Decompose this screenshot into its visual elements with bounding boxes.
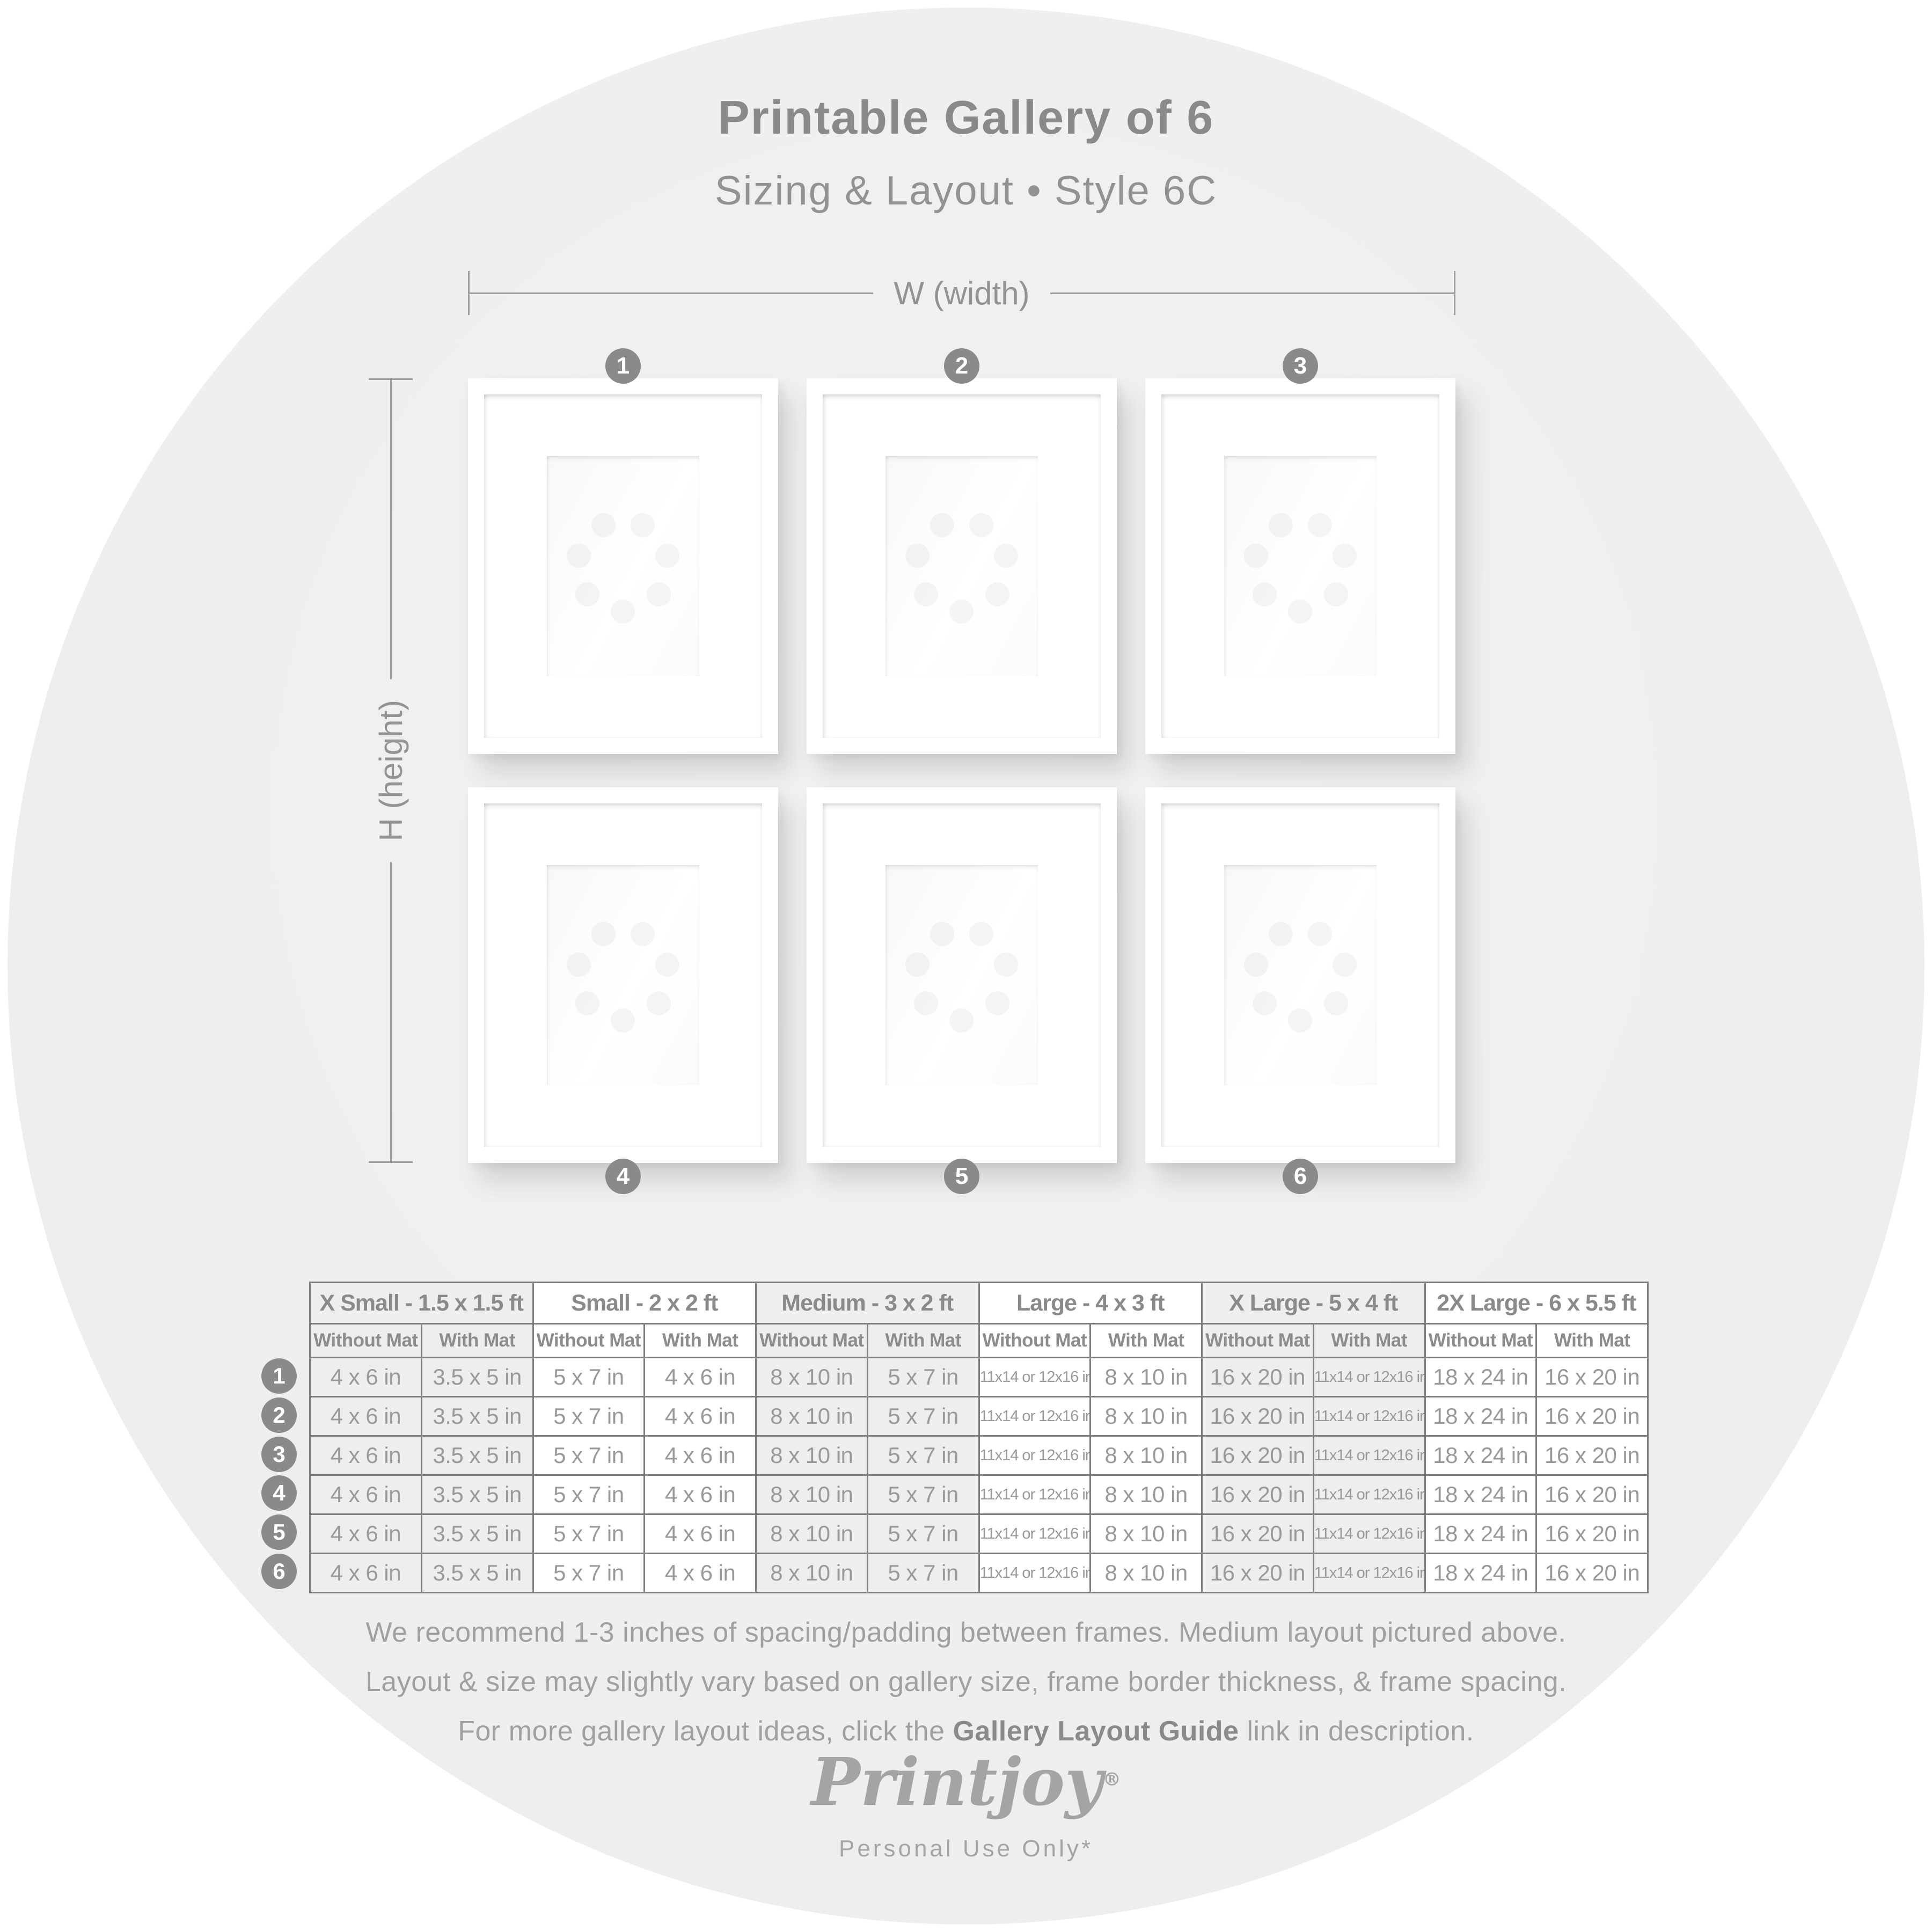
subheader-cell: With Mat bbox=[421, 1324, 533, 1358]
size-cell: 16 x 20 in bbox=[1202, 1436, 1314, 1475]
size-cell: 11x14 or 12x16 in bbox=[1313, 1514, 1425, 1554]
size-cell: 11x14 or 12x16 in bbox=[1313, 1358, 1425, 1397]
placeholder-dot bbox=[1288, 599, 1312, 624]
frame-number-badge: 5 bbox=[944, 1159, 979, 1194]
subheader-cell: Without Mat bbox=[756, 1324, 868, 1358]
size-cell: 4 x 6 in bbox=[310, 1358, 422, 1397]
placeholder-dot bbox=[949, 599, 974, 624]
placeholder-dot bbox=[647, 582, 671, 606]
placeholder-dot bbox=[905, 953, 930, 977]
size-cell: 18 x 24 in bbox=[1425, 1514, 1536, 1554]
placeholder-dot bbox=[1253, 991, 1277, 1015]
size-cell: 11x14 or 12x16 in bbox=[1313, 1397, 1425, 1436]
size-cell: 5 x 7 in bbox=[867, 1358, 979, 1397]
picture-frame bbox=[468, 787, 778, 1163]
placeholder-dot bbox=[1333, 544, 1357, 568]
placeholder-dot bbox=[1288, 1008, 1312, 1033]
frame-mat bbox=[1161, 803, 1439, 1147]
size-cell: 3.5 x 5 in bbox=[421, 1514, 533, 1554]
size-cell: 4 x 6 in bbox=[310, 1436, 422, 1475]
row-number-badge: 2 bbox=[261, 1397, 297, 1433]
footer-line-3-prefix: For more gallery layout ideas, click the bbox=[458, 1716, 953, 1747]
size-cell: 8 x 10 in bbox=[756, 1358, 868, 1397]
size-cell: 4 x 6 in bbox=[645, 1475, 756, 1514]
placeholder-dot bbox=[930, 513, 954, 537]
brand-name: Printjoy bbox=[811, 1743, 1103, 1820]
subheader-cell: Without Mat bbox=[1202, 1324, 1314, 1358]
width-dim-tick-right bbox=[1454, 271, 1455, 315]
height-dim-label: H (height) bbox=[372, 679, 409, 861]
size-cell: 5 x 7 in bbox=[867, 1554, 979, 1593]
size-cell: 8 x 10 in bbox=[1091, 1514, 1202, 1554]
size-cell: 16 x 20 in bbox=[1536, 1358, 1648, 1397]
size-cell: 3.5 x 5 in bbox=[421, 1397, 533, 1436]
frame-number-badge: 3 bbox=[1283, 348, 1318, 384]
size-cell: 16 x 20 in bbox=[1202, 1475, 1314, 1514]
placeholder-dot bbox=[631, 513, 655, 537]
frame-number-badge: 1 bbox=[605, 348, 641, 384]
footer-line-3-suffix: link in description. bbox=[1239, 1716, 1474, 1747]
placeholder-dot bbox=[1333, 953, 1357, 977]
frame-number-badge: 6 bbox=[1283, 1159, 1318, 1194]
subheader-cell: Without Mat bbox=[533, 1324, 645, 1358]
picture-frame bbox=[807, 378, 1117, 754]
size-cell: 4 x 6 in bbox=[645, 1554, 756, 1593]
width-dim-label: W (width) bbox=[873, 275, 1050, 312]
footer-line-1: We recommend 1-3 inches of spacing/paddi… bbox=[0, 1608, 1932, 1657]
placeholder-dot bbox=[567, 544, 591, 568]
placeholder-dot bbox=[575, 582, 599, 606]
table-row: 4 x 6 in3.5 x 5 in5 x 7 in4 x 6 in8 x 10… bbox=[310, 1436, 1648, 1475]
placeholder-dot bbox=[969, 513, 993, 537]
placeholder-dot bbox=[1244, 544, 1268, 568]
frame-mat bbox=[823, 394, 1101, 738]
placeholder-dot bbox=[905, 544, 930, 568]
placeholder-dot bbox=[1253, 582, 1277, 606]
size-cell: 5 x 7 in bbox=[867, 1475, 979, 1514]
brand-logo: Printjoy® bbox=[0, 1743, 1932, 1820]
page-title: Printable Gallery of 6 bbox=[0, 90, 1932, 145]
placeholder-dot bbox=[994, 953, 1018, 977]
placeholder-dot bbox=[1308, 513, 1332, 537]
placeholder-dot bbox=[655, 544, 679, 568]
row-number-badge: 1 bbox=[261, 1358, 297, 1394]
size-cell: 18 x 24 in bbox=[1425, 1554, 1536, 1593]
size-cell: 16 x 20 in bbox=[1536, 1514, 1648, 1554]
width-dim-line-left bbox=[470, 292, 873, 294]
height-dim-tick-bottom bbox=[369, 1161, 413, 1163]
size-cell: 5 x 7 in bbox=[533, 1358, 645, 1397]
subheader-cell: With Mat bbox=[1536, 1324, 1648, 1358]
subheader-cell: With Mat bbox=[1313, 1324, 1425, 1358]
gallery-layout-guide-text: Gallery Layout Guide bbox=[953, 1716, 1239, 1747]
size-cell: 4 x 6 in bbox=[645, 1436, 756, 1475]
placeholder-dot bbox=[1269, 922, 1293, 946]
group-header-cell: X Small - 1.5 x 1.5 ft bbox=[310, 1283, 533, 1324]
frame-mat bbox=[823, 803, 1101, 1147]
placeholder-dot bbox=[631, 922, 655, 946]
size-cell: 16 x 20 in bbox=[1536, 1436, 1648, 1475]
size-cell: 5 x 7 in bbox=[533, 1475, 645, 1514]
size-cell: 4 x 6 in bbox=[645, 1397, 756, 1436]
size-cell: 5 x 7 in bbox=[867, 1436, 979, 1475]
size-cell: 11x14 or 12x16 in bbox=[979, 1554, 1091, 1593]
size-cell: 8 x 10 in bbox=[756, 1554, 868, 1593]
frame-mat bbox=[484, 803, 762, 1147]
group-header-cell: Medium - 3 x 2 ft bbox=[756, 1283, 979, 1324]
size-cell: 5 x 7 in bbox=[533, 1397, 645, 1436]
size-cell: 18 x 24 in bbox=[1425, 1358, 1536, 1397]
placeholder-dot bbox=[914, 582, 938, 606]
size-cell: 4 x 6 in bbox=[310, 1514, 422, 1554]
size-cell: 3.5 x 5 in bbox=[421, 1554, 533, 1593]
placeholder-dot bbox=[949, 1008, 974, 1033]
size-cell: 18 x 24 in bbox=[1425, 1436, 1536, 1475]
frame-mat bbox=[484, 394, 762, 738]
placeholder-dot bbox=[914, 991, 938, 1015]
placeholder-dot bbox=[591, 513, 616, 537]
size-cell: 16 x 20 in bbox=[1536, 1554, 1648, 1593]
placeholder-dot bbox=[567, 953, 591, 977]
width-dim-line-right bbox=[1050, 292, 1454, 294]
frame-print-window bbox=[885, 865, 1038, 1085]
size-cell: 11x14 or 12x16 in bbox=[979, 1514, 1091, 1554]
subheader-cell: With Mat bbox=[867, 1324, 979, 1358]
size-cell: 8 x 10 in bbox=[1091, 1358, 1202, 1397]
frame-print-window bbox=[1224, 456, 1377, 676]
size-cell: 3.5 x 5 in bbox=[421, 1436, 533, 1475]
size-cell: 4 x 6 in bbox=[645, 1358, 756, 1397]
size-table: X Small - 1.5 x 1.5 ftSmall - 2 x 2 ftMe… bbox=[309, 1282, 1649, 1593]
frame-print-window bbox=[1224, 865, 1377, 1085]
logo-tagline: Personal Use Only* bbox=[0, 1835, 1932, 1862]
size-cell: 16 x 20 in bbox=[1202, 1554, 1314, 1593]
frame-mat bbox=[1161, 394, 1439, 738]
placeholder-dot bbox=[1308, 922, 1332, 946]
table-row: 4 x 6 in3.5 x 5 in5 x 7 in4 x 6 in8 x 10… bbox=[310, 1358, 1648, 1397]
picture-frame bbox=[468, 378, 778, 754]
size-cell: 11x14 or 12x16 in bbox=[979, 1358, 1091, 1397]
footer-line-2: Layout & size may slightly vary based on… bbox=[0, 1657, 1932, 1707]
size-cell: 4 x 6 in bbox=[310, 1397, 422, 1436]
height-dimension: H (height) bbox=[369, 378, 413, 1163]
size-cell: 5 x 7 in bbox=[533, 1436, 645, 1475]
size-cell: 8 x 10 in bbox=[756, 1436, 868, 1475]
group-header-cell: Small - 2 x 2 ft bbox=[533, 1283, 756, 1324]
size-cell: 5 x 7 in bbox=[867, 1514, 979, 1554]
size-cell: 5 x 7 in bbox=[533, 1554, 645, 1593]
width-dimension: W (width) bbox=[468, 271, 1455, 315]
size-cell: 4 x 6 in bbox=[310, 1554, 422, 1593]
placeholder-dot bbox=[611, 599, 635, 624]
size-cell: 18 x 24 in bbox=[1425, 1397, 1536, 1436]
frame-print-window bbox=[547, 456, 700, 676]
placeholder-dot bbox=[969, 922, 993, 946]
placeholder-dot bbox=[930, 922, 954, 946]
placeholder-dot bbox=[994, 544, 1018, 568]
placeholder-dot bbox=[591, 922, 616, 946]
height-dim-line-top bbox=[390, 380, 392, 679]
size-cell: 16 x 20 in bbox=[1202, 1397, 1314, 1436]
size-cell: 16 x 20 in bbox=[1202, 1358, 1314, 1397]
size-cell: 4 x 6 in bbox=[310, 1475, 422, 1514]
picture-frame bbox=[1145, 787, 1455, 1163]
placeholder-dot bbox=[985, 582, 1009, 606]
size-cell: 11x14 or 12x16 in bbox=[1313, 1475, 1425, 1514]
picture-frame bbox=[807, 787, 1117, 1163]
group-header-cell: 2X Large - 6 x 5.5 ft bbox=[1425, 1283, 1648, 1324]
size-cell: 8 x 10 in bbox=[1091, 1554, 1202, 1593]
size-cell: 11x14 or 12x16 in bbox=[979, 1397, 1091, 1436]
picture-frame bbox=[1145, 378, 1455, 754]
size-cell: 8 x 10 in bbox=[1091, 1397, 1202, 1436]
table-subheader-row: Without MatWith MatWithout MatWith MatWi… bbox=[310, 1324, 1648, 1358]
group-header-cell: X Large - 5 x 4 ft bbox=[1202, 1283, 1425, 1324]
size-cell: 3.5 x 5 in bbox=[421, 1358, 533, 1397]
row-number-badge: 4 bbox=[261, 1475, 297, 1511]
frame-number-badge: 4 bbox=[605, 1159, 641, 1194]
subheader-cell: With Mat bbox=[1091, 1324, 1202, 1358]
size-cell: 16 x 20 in bbox=[1536, 1397, 1648, 1436]
size-cell: 11x14 or 12x16 in bbox=[1313, 1554, 1425, 1593]
placeholder-dot bbox=[1244, 953, 1268, 977]
size-cell: 3.5 x 5 in bbox=[421, 1475, 533, 1514]
placeholder-dot bbox=[985, 991, 1009, 1015]
table-group-header-row: X Small - 1.5 x 1.5 ftSmall - 2 x 2 ftMe… bbox=[310, 1283, 1648, 1324]
size-cell: 5 x 7 in bbox=[867, 1397, 979, 1436]
size-cell: 16 x 20 in bbox=[1536, 1475, 1648, 1514]
frame-number-badge: 2 bbox=[944, 348, 979, 384]
frames-grid bbox=[468, 378, 1455, 1163]
poster: Printable Gallery of 6 Sizing & Layout •… bbox=[0, 0, 1932, 1932]
row-number-badge: 6 bbox=[261, 1554, 297, 1589]
placeholder-dot bbox=[655, 953, 679, 977]
table-row: 4 x 6 in3.5 x 5 in5 x 7 in4 x 6 in8 x 10… bbox=[310, 1475, 1648, 1514]
registered-trademark-icon: ® bbox=[1103, 1769, 1121, 1790]
size-cell: 4 x 6 in bbox=[645, 1514, 756, 1554]
size-cell: 8 x 10 in bbox=[1091, 1436, 1202, 1475]
placeholder-dot bbox=[1324, 991, 1348, 1015]
row-number-badge: 5 bbox=[261, 1514, 297, 1550]
size-cell: 11x14 or 12x16 in bbox=[979, 1475, 1091, 1514]
subheader-cell: With Mat bbox=[645, 1324, 756, 1358]
table-row: 4 x 6 in3.5 x 5 in5 x 7 in4 x 6 in8 x 10… bbox=[310, 1514, 1648, 1554]
size-cell: 8 x 10 in bbox=[1091, 1475, 1202, 1514]
table-row: 4 x 6 in3.5 x 5 in5 x 7 in4 x 6 in8 x 10… bbox=[310, 1554, 1648, 1593]
size-cell: 11x14 or 12x16 in bbox=[979, 1436, 1091, 1475]
size-cell: 11x14 or 12x16 in bbox=[1313, 1436, 1425, 1475]
placeholder-dot bbox=[575, 991, 599, 1015]
size-cell: 8 x 10 in bbox=[756, 1475, 868, 1514]
subheader-cell: Without Mat bbox=[1425, 1324, 1536, 1358]
table-row: 4 x 6 in3.5 x 5 in5 x 7 in4 x 6 in8 x 10… bbox=[310, 1397, 1648, 1436]
placeholder-dot bbox=[1324, 582, 1348, 606]
page-subtitle: Sizing & Layout • Style 6C bbox=[0, 167, 1932, 214]
size-table-body: 4 x 6 in3.5 x 5 in5 x 7 in4 x 6 in8 x 10… bbox=[310, 1358, 1648, 1593]
size-cell: 8 x 10 in bbox=[756, 1397, 868, 1436]
footer-note: We recommend 1-3 inches of spacing/paddi… bbox=[0, 1608, 1932, 1756]
height-dim-line-bottom bbox=[390, 862, 392, 1161]
size-cell: 5 x 7 in bbox=[533, 1514, 645, 1554]
frame-print-window bbox=[547, 865, 700, 1085]
subheader-cell: Without Mat bbox=[979, 1324, 1091, 1358]
group-header-cell: Large - 4 x 3 ft bbox=[979, 1283, 1202, 1324]
size-cell: 16 x 20 in bbox=[1202, 1514, 1314, 1554]
size-cell: 8 x 10 in bbox=[756, 1514, 868, 1554]
row-number-badge: 3 bbox=[261, 1437, 297, 1472]
placeholder-dot bbox=[647, 991, 671, 1015]
size-cell: 18 x 24 in bbox=[1425, 1475, 1536, 1514]
placeholder-dot bbox=[1269, 513, 1293, 537]
frame-print-window bbox=[885, 456, 1038, 676]
subheader-cell: Without Mat bbox=[310, 1324, 422, 1358]
size-table-head: X Small - 1.5 x 1.5 ftSmall - 2 x 2 ftMe… bbox=[310, 1283, 1648, 1358]
placeholder-dot bbox=[611, 1008, 635, 1033]
